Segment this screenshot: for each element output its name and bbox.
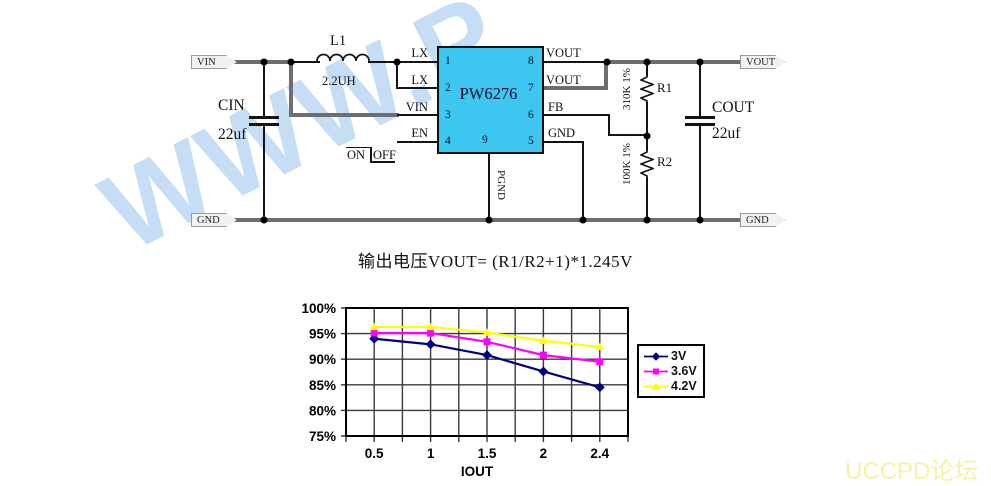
svg-text:75%: 75% — [309, 429, 336, 444]
r1-value: 310K 1% — [621, 64, 633, 114]
ic-part-number: PW6276 — [437, 84, 540, 104]
svg-text:0.5: 0.5 — [365, 446, 384, 461]
pin-label-lx2: LX — [394, 73, 428, 88]
resistor-r1-symbol — [640, 75, 654, 103]
svg-text:1: 1 — [427, 446, 435, 461]
wire-gnd-pin — [542, 141, 584, 143]
svg-text:2.4: 2.4 — [590, 446, 609, 461]
cin-lead-bottom — [263, 126, 265, 219]
r2-lead-bottom — [646, 177, 648, 220]
cout-lead-top — [699, 62, 701, 117]
pin-number-2: 2 — [445, 82, 451, 94]
terminal-gnd-right: GND — [740, 213, 786, 227]
pgnd-wire — [488, 152, 490, 220]
inductor-ref: L1 — [330, 33, 346, 50]
onoff-off-label: OFF — [373, 148, 396, 163]
cout-capacitor-plate — [685, 116, 715, 119]
cin-lead-top — [263, 62, 265, 117]
onoff-on-label: ON — [347, 148, 365, 163]
svg-text:100%: 100% — [301, 301, 336, 316]
pin-number-9: 9 — [482, 134, 488, 146]
pin-label-pgnd: PGND — [493, 165, 507, 205]
inductor-coil — [316, 49, 370, 63]
junction-dot — [486, 217, 493, 224]
junction-dot — [604, 59, 611, 66]
resistor-r2-symbol — [640, 150, 654, 178]
pin-number-4: 4 — [445, 135, 451, 147]
cout-value: 22uf — [712, 125, 740, 143]
svg-text:90%: 90% — [309, 352, 336, 367]
pin-label-vout7: VOUT — [546, 73, 580, 88]
r1-ref: R1 — [657, 80, 672, 96]
terminal-gnd-left: GND — [191, 213, 237, 227]
legend-entry: 3.6V — [644, 364, 697, 378]
svg-text:95%: 95% — [309, 327, 336, 342]
page: WWW.P — [0, 0, 991, 486]
svg-text:85%: 85% — [309, 378, 336, 393]
terminal-vin: VIN — [191, 55, 237, 69]
svg-text:IOUT: IOUT — [461, 464, 494, 479]
junction-dot — [261, 217, 268, 224]
cout-ref: COUT — [712, 99, 754, 117]
pin-number-3: 3 — [445, 109, 451, 121]
pin-number-5: 5 — [528, 135, 534, 147]
pin-number-1: 1 — [445, 55, 451, 67]
vin-branch-vertical — [289, 60, 293, 117]
pin-label-vin: VIN — [394, 100, 428, 115]
legend-entry: 3V — [644, 349, 697, 363]
terminal-gnd-right-label: GND — [746, 215, 769, 226]
pin-label-gnd: GND — [548, 126, 582, 141]
cin-capacitor-plate — [249, 123, 279, 126]
junction-dot — [644, 133, 651, 140]
junction-dot — [644, 217, 651, 224]
wire-gnd-drop — [582, 141, 584, 220]
wire-fb-vertical — [608, 114, 610, 136]
inductor-value: 2.2UH — [322, 74, 356, 89]
wire-lx1 — [368, 61, 437, 63]
svg-text:1.5: 1.5 — [478, 446, 497, 461]
legend-label: 4.2V — [671, 379, 697, 393]
terminal-vin-label: VIN — [197, 57, 216, 68]
r1-r2-link — [646, 102, 648, 151]
footer-brand: UCCPD论坛 — [845, 451, 978, 486]
wire-fb-to-divider — [608, 134, 648, 136]
terminal-vout: VOUT — [740, 55, 786, 69]
junction-dot — [261, 59, 268, 66]
cin-ref: CIN — [218, 97, 245, 115]
chart-legend: 3V3.6V4.2V — [637, 344, 705, 398]
pin-label-fb: FB — [548, 100, 582, 115]
pin-label-en: EN — [394, 126, 428, 141]
cin-value: 22uf — [218, 126, 246, 144]
cin-capacitor-plate — [249, 116, 279, 119]
output-voltage-formula: 输出电压VOUT= (R1/R2+1)*1.245V — [0, 247, 991, 272]
cout-capacitor-plate — [685, 123, 715, 126]
svg-text:80%: 80% — [309, 403, 336, 418]
pin-number-8: 8 — [528, 55, 534, 67]
legend-label: 3.6V — [671, 364, 697, 378]
junction-dot — [697, 59, 704, 66]
junction-dot — [644, 59, 651, 66]
wire-vout8 — [542, 61, 606, 63]
vin-branch-horizontal — [289, 113, 399, 117]
legend-marker-diamond-icon — [644, 351, 668, 362]
pin-number-7: 7 — [528, 82, 534, 94]
legend-entry: 4.2V — [644, 379, 697, 393]
junction-dot — [697, 217, 704, 224]
cout-lead-bottom — [699, 126, 701, 219]
svg-text:2: 2 — [540, 446, 548, 461]
terminal-vout-label: VOUT — [746, 57, 775, 68]
terminal-gnd-left-label: GND — [197, 215, 220, 226]
r2-ref: R2 — [657, 154, 672, 170]
legend-marker-triangle-icon — [644, 381, 668, 392]
legend-label: 3V — [671, 349, 686, 363]
legend-marker-square-icon — [644, 366, 668, 377]
junction-dot — [288, 59, 295, 66]
r2-value: 100K 1% — [621, 139, 633, 189]
pin-label-vout8: VOUT — [546, 46, 580, 61]
pin-number-6: 6 — [528, 109, 534, 121]
wire-en — [397, 141, 437, 143]
pin-label-lx1: LX — [394, 46, 428, 61]
junction-dot — [580, 217, 587, 224]
